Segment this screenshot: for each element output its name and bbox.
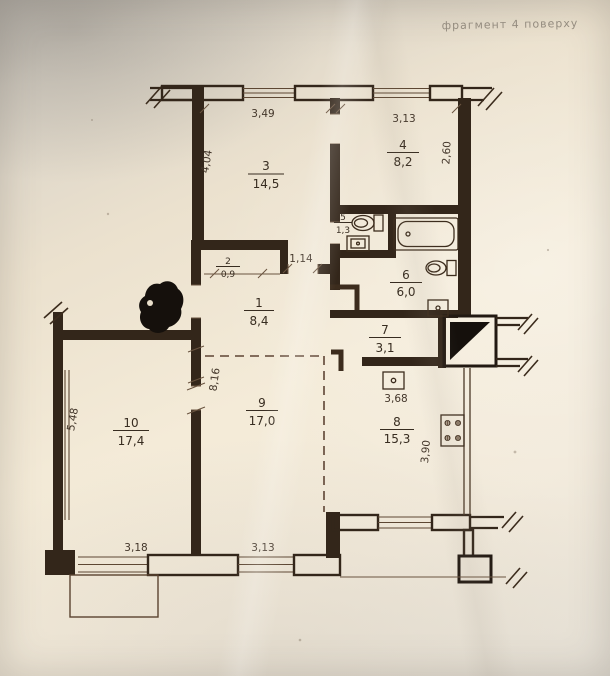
room-6-label: 6 6,0 bbox=[390, 268, 422, 299]
scanned-floorplan-photo: фрагмент 4 поверху bbox=[0, 0, 610, 676]
stove-icon bbox=[441, 415, 464, 446]
bathtub-icon bbox=[394, 218, 458, 250]
dim-top-room3: 3,49 bbox=[251, 108, 274, 120]
hall-left-wall-upper bbox=[191, 240, 201, 285]
window-left-room10 bbox=[65, 370, 69, 520]
room-7-area: 3,1 bbox=[375, 341, 394, 355]
balcony bbox=[70, 575, 158, 617]
room3-bottom-wall bbox=[192, 240, 288, 250]
wall-break-symbol-shaft bbox=[518, 314, 538, 376]
room-1-number: 1 bbox=[255, 296, 263, 310]
dim-bottom-room9: 3,13 bbox=[251, 542, 274, 554]
room-5-area: 1,3 bbox=[336, 226, 350, 236]
room-8-number: 8 bbox=[393, 415, 401, 429]
sink-icon-kitchen bbox=[383, 372, 404, 389]
top-wall-left-extension bbox=[150, 88, 192, 100]
room-4-label: 4 8,2 bbox=[387, 138, 419, 169]
paper-specks bbox=[91, 119, 549, 641]
room-1-area: 8,4 bbox=[249, 314, 268, 328]
window-top-1 bbox=[243, 89, 295, 98]
room-9-area: 17,0 bbox=[249, 414, 276, 428]
top-wall-pier-2 bbox=[295, 86, 373, 100]
room-3-area: 14,5 bbox=[253, 177, 280, 191]
bottom-wall-pier-1 bbox=[148, 555, 238, 575]
room-2-label: 2 0,9 bbox=[216, 257, 240, 280]
room-3-label: 3 14,5 bbox=[248, 159, 284, 191]
room-5-number: 5 bbox=[340, 213, 346, 223]
dim-hall-opening: 1,14 bbox=[289, 253, 313, 265]
room-6-number: 6 bbox=[402, 268, 410, 282]
dim-bottom-room10: 3,18 bbox=[124, 542, 147, 554]
hall-opening-stub bbox=[318, 264, 340, 274]
window-top-2 bbox=[373, 89, 430, 98]
dim-wall-9-10: 8,16 bbox=[207, 367, 222, 392]
sink-icon-wc bbox=[347, 236, 369, 251]
bottom-left-corner-wall bbox=[45, 550, 75, 575]
kitchen-bottom-pier-2 bbox=[432, 515, 470, 530]
door-jamb-room4 bbox=[330, 114, 340, 144]
vent-shaft-icon bbox=[444, 314, 538, 376]
room-9-label: 9 17,0 bbox=[246, 396, 278, 428]
kitchen-right-wall bbox=[464, 368, 470, 515]
room-8-area: 15,3 bbox=[384, 432, 411, 446]
dim-kitchen-top: 3,68 bbox=[384, 393, 407, 405]
door-ticks-room10 bbox=[187, 383, 205, 414]
toilet-icon-bathroom bbox=[426, 261, 456, 276]
room-4-number: 4 bbox=[399, 138, 407, 152]
dim-top-room4: 3,13 bbox=[392, 113, 415, 125]
wall-3-4-upper bbox=[330, 98, 340, 114]
corridor7-bottom-wall bbox=[362, 357, 442, 366]
wc-left-wall-upper bbox=[330, 214, 340, 222]
room-10-area: 17,4 bbox=[118, 434, 145, 448]
bottom-right-wall-stub bbox=[464, 530, 473, 556]
wall-9-10-upper bbox=[191, 318, 201, 386]
window-bottom-room10 bbox=[78, 557, 148, 572]
ink-blob bbox=[139, 281, 183, 333]
room-2-number: 2 bbox=[225, 257, 231, 267]
left-exterior-wall bbox=[53, 312, 63, 555]
window-bottom-kitchen bbox=[378, 517, 432, 528]
room-8-label: 8 15,3 bbox=[380, 415, 414, 446]
room-9-number: 9 bbox=[258, 396, 266, 410]
wall-3-4-lower bbox=[330, 144, 340, 210]
bottom-right-pillar bbox=[459, 556, 491, 582]
room-10-number: 10 bbox=[123, 416, 138, 430]
wall-under-rooms-3-4 bbox=[330, 205, 471, 214]
dim-left-room10: 5,48 bbox=[65, 407, 81, 432]
room-7-number: 7 bbox=[381, 323, 389, 337]
shaft-triangle bbox=[450, 322, 490, 360]
room-10-label: 10 17,4 bbox=[113, 416, 149, 448]
floorplan-drawing: 1 8,4 2 0,9 3 14,5 4 8,2 5 bbox=[0, 0, 610, 676]
wall-break-symbol-top-left bbox=[146, 86, 170, 108]
room-2-area: 0,9 bbox=[221, 270, 236, 280]
room-1-label: 1 8,4 bbox=[244, 296, 274, 328]
fixtures bbox=[347, 215, 464, 446]
room-4-area: 8,2 bbox=[393, 155, 412, 169]
room10-top-wall bbox=[53, 330, 191, 340]
dashed-partitions bbox=[205, 356, 324, 512]
dim-kitchen-right: 3,90 bbox=[419, 440, 433, 464]
toilet-icon-wc bbox=[352, 215, 383, 231]
room-6-area: 6,0 bbox=[396, 285, 415, 299]
room-7-label: 7 3,1 bbox=[369, 323, 401, 355]
wall-9-10-lower bbox=[191, 410, 201, 555]
ink-blob-highlight bbox=[147, 300, 153, 306]
top-wall-pier-3 bbox=[430, 86, 462, 100]
bath-nook-wall bbox=[330, 287, 357, 312]
dim-right-room4: 2,60 bbox=[440, 141, 453, 165]
room-3-number: 3 bbox=[262, 159, 270, 173]
window-bottom-room9 bbox=[238, 557, 294, 572]
kitchen-door-step-wall bbox=[331, 352, 341, 371]
bottom-wall-right-extension bbox=[470, 517, 504, 528]
